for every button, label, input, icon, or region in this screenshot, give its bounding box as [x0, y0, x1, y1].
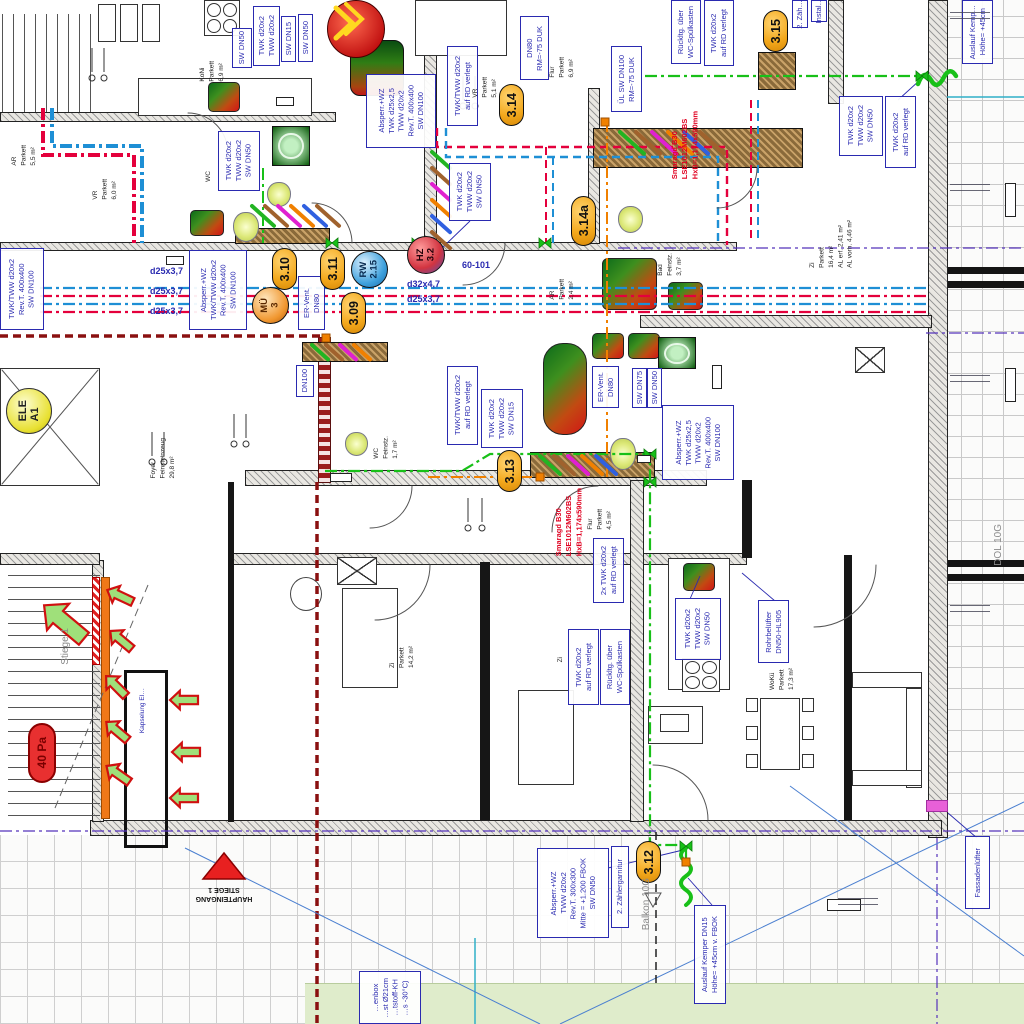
pipe-label-box: TWK d20x2TWW d20x2SW DN50	[449, 163, 491, 221]
label-line: Parkett	[398, 646, 407, 668]
micro-annotation	[950, 605, 990, 612]
label-line: 2. Zählergarnitur	[615, 859, 625, 914]
label-line: Absperr.+WZ	[674, 417, 684, 469]
label-line: A1	[29, 400, 41, 421]
pipe-label-box: Rückltg. überWC-Spülkasten	[671, 0, 701, 64]
room-label: VRParkett5,1 m²	[478, 70, 493, 104]
label-line: ER-Vent.	[302, 288, 312, 318]
riser-badge: MÜ3	[252, 287, 289, 324]
label-line: 3.2	[426, 248, 436, 261]
label-line: TWW d20x2	[497, 398, 507, 439]
dimension-text: d25x3,7	[407, 294, 440, 304]
label-line: auf RD verlegt	[463, 375, 473, 435]
room-label: ZiParkett16,4 m²AL erf. 2,41 m²AL vorh. …	[810, 213, 854, 275]
pipe-label-box: TWK d20x2auf RD verlegt	[704, 0, 734, 66]
label-line: Smaragd B30	[554, 488, 564, 556]
label-line: Rückltg. über	[676, 6, 686, 58]
labels-layer: SW DN50TWK d20x2TWW d20x2SW DN15SW DN50T…	[0, 0, 1024, 1024]
label-line: …st Ø21cm	[380, 978, 390, 1018]
label-line: TWK/TWW d20x2	[453, 56, 463, 116]
entrance-label: HAUPTEINGANGSTIEGE 1	[190, 882, 258, 902]
label-line: AL erf. 2,41 m²	[837, 220, 846, 268]
label-line: …tstoff-KH	[390, 978, 400, 1018]
label-line: 5,5 m²	[29, 145, 38, 166]
label-line: SW DN50	[244, 140, 254, 181]
label-line: Absperr.+WZ	[377, 85, 387, 137]
smaragd-note: Smaragd B30LSE1012M602BSHxB=1,174x590mm	[667, 106, 703, 184]
pipe-label-box: 2. Zählergarnitur	[611, 846, 629, 928]
label-line: TWK d20x2	[846, 105, 856, 146]
label-line: Zi	[556, 657, 565, 662]
floorplan-drawing: SW DN50TWK d20x2TWW d20x2SW DN15SW DN50T…	[0, 0, 1024, 1024]
smaragd-note: Smaragd B30LSE1012M602BSHxB=1,174x590mm	[551, 486, 587, 558]
label-line: 3.11	[326, 257, 340, 281]
label-line: LSE1012M602BS	[564, 488, 574, 556]
label-line: TWK/TWW d20x2	[7, 259, 17, 319]
label-line: SW DN15	[507, 398, 517, 439]
pipe-label-box: TWK d20x2TWW d20x2	[253, 6, 280, 66]
label-line: TWK d20x2	[574, 643, 584, 691]
small-note-box	[712, 365, 722, 389]
label-line: LSE1012M602BS	[680, 111, 690, 179]
label-line: WC	[372, 436, 381, 459]
label-line: 3	[271, 298, 281, 313]
facade-tag	[1005, 183, 1016, 217]
label-line: 2,4 m²	[567, 279, 576, 300]
small-note-box	[330, 473, 352, 482]
label-line: DN80	[525, 26, 535, 71]
shaft-badge: 3.15	[763, 10, 788, 52]
pipe-label-box: Absperr.+WZTWK d25x2,5TWW d20x2Rev.T. 40…	[366, 74, 436, 148]
label-line: HAUPTEINGANG	[190, 893, 258, 902]
label-line: Kapselung EI…	[139, 688, 146, 733]
label-line: TWW d20x2	[234, 140, 244, 181]
label-line: TWW d20x2	[396, 85, 406, 137]
micro-annotation	[950, 184, 990, 191]
label-line: Feinstz.	[381, 436, 390, 459]
pipe-label-box: DN80RM=-75 DUK	[520, 16, 549, 80]
label-line: AL vorh. 4,46 m²	[846, 220, 855, 268]
label-line: WC	[204, 171, 213, 182]
pipe-label-box: 2x TWK d20x2auf RD verlegt	[593, 538, 624, 603]
shaft-badge: 3.09	[341, 292, 366, 334]
label-line: SW DN100	[713, 417, 723, 469]
label-line: Flur	[586, 509, 595, 530]
micro-annotation	[950, 12, 990, 19]
room-label: FlurParkett4,5 m²	[593, 503, 608, 535]
label-line: 2. Zäh…	[795, 0, 805, 28]
label-line: Smaragd B30	[670, 111, 680, 179]
label-line: Rev.T. 400x400	[17, 259, 27, 319]
pipe-label-box: Absperr.+WZTWK/TWW d20x2Rev.T. 400x400SW…	[189, 250, 247, 330]
label-line: Rohrbelüfter	[764, 610, 774, 654]
label-line: DN50-HL905	[774, 610, 784, 654]
label-line: TWK d20x2	[683, 608, 693, 649]
label-line: SW DN50	[703, 608, 713, 649]
room-label: ZiParkett14,2 m²	[394, 638, 411, 676]
stair-label: Stiege 1	[60, 628, 71, 674]
pipe-label-box: Auslauf Kemper DN15Höhe= +45cm v. FBOK	[694, 905, 726, 1004]
label-line: Flur	[548, 57, 557, 78]
label-line: TWK d20x2	[891, 108, 901, 156]
label-line: TWK d20x2	[257, 15, 267, 56]
small-note-box	[637, 455, 651, 463]
room-label: FlurParkett6,9 m²	[554, 48, 571, 86]
micro-annotation	[838, 898, 878, 905]
label-line: TWK/TWW d20x2	[208, 260, 218, 320]
pipe-label-box: SW DN75	[632, 368, 647, 408]
room-label: VRParkett6,0 m²	[96, 170, 114, 208]
label-line: Rev.T. 400x400	[218, 260, 228, 320]
encapsulation-note: Kapselung EI…	[139, 688, 149, 750]
label-line: SW DN50	[650, 371, 660, 404]
label-line: TWW d20x2	[856, 105, 866, 146]
label-line: 3.10	[278, 257, 292, 281]
label-line: Rev.T. 300x300	[568, 858, 578, 928]
label-line: Feinstz.	[666, 253, 675, 276]
label-line: 2x TWK d20x2	[599, 546, 609, 595]
label-line: Rev.T. 400x400	[406, 85, 416, 137]
label-line: TWW d20x2	[558, 858, 568, 928]
dimension-text: 60-101	[462, 260, 490, 270]
label-line: auf RD verlegt	[719, 9, 729, 57]
room-label: BadFeinstz.3,7 m²	[662, 248, 679, 280]
pipe-label-box: ER-Vent.DN80	[592, 366, 619, 408]
label-line: Auslauf Kemper DN15	[700, 916, 710, 993]
shaft-badge: 3.11	[320, 248, 345, 290]
riser-badge: RW2.15	[351, 251, 388, 288]
dimension-text: d32x4,7	[407, 279, 440, 289]
label-line: 14,2 m²	[407, 646, 416, 668]
label-line: TWW d20x2	[465, 171, 475, 212]
label-line: TWK/TWW d20x2	[453, 375, 463, 435]
label-line: …enbox	[371, 978, 381, 1018]
label-line: 3.13	[503, 459, 517, 483]
pipe-label-box: TWK d20x2TWW d20x2SW DN50	[675, 598, 721, 660]
label-line: auf RD verlegt	[609, 546, 619, 595]
label-line: KoNi	[198, 61, 207, 82]
pipe-label-box: TWK d20x2TWW d20x2SW DN50	[839, 96, 883, 156]
pressure-badge: 40 Pa	[28, 723, 56, 783]
label-line: 3,7 m²	[675, 253, 684, 276]
micro-annotation	[950, 375, 990, 382]
label-line: ÜL SW DN100	[617, 55, 627, 104]
label-line: 3.09	[347, 301, 361, 325]
label-line: TWK d25x2,5	[683, 417, 693, 469]
label-line: Feinsteinzeug	[158, 438, 167, 478]
pipe-label-box: Absperr.+WZTWW d20x2Rev.T. 300x300Mitte …	[537, 848, 609, 938]
pipe-label-box: ÜL SW DN100RM=-75 DUK	[611, 46, 642, 112]
label-line: TWK d20x2	[487, 398, 497, 439]
room-label: FoyerFeinsteinzeug29,8 m²	[153, 436, 173, 480]
label-line: ELE	[17, 400, 29, 421]
label-line: Parkett	[19, 145, 28, 166]
label-line: TWK d20x2	[455, 171, 465, 212]
label-line: Rückltg. über	[605, 641, 615, 693]
label-line: TWK d20x2	[224, 140, 234, 181]
label-line: SW DN50	[588, 858, 598, 928]
label-line: AR	[10, 145, 19, 166]
label-line: Zi	[388, 646, 397, 668]
label-line: VR	[471, 77, 480, 98]
label-line: Parkett	[558, 57, 567, 78]
label-line: SW DN50	[475, 171, 485, 212]
dimension-text: d25x3,7	[150, 306, 183, 316]
label-line: 3.15	[769, 19, 783, 43]
label-line: WC-Spülkasten	[615, 641, 625, 693]
shaft-badge: 3.10	[272, 248, 297, 290]
label-line: DN80	[312, 288, 322, 318]
label-line: SW DN75	[635, 371, 645, 404]
label-line: SW DN15	[284, 22, 294, 55]
label-line: SW DN50	[237, 31, 247, 64]
label-line: Foyer	[149, 438, 158, 478]
dimension-text: d25x3,7	[150, 286, 183, 296]
label-line: 29,8 m²	[168, 438, 177, 478]
label-line: HxB=1,174x590mm	[690, 111, 700, 179]
label-line: 4,5 m²	[605, 509, 614, 530]
label-line: Rev.T. 400x400	[703, 417, 713, 469]
label-line: Instal…	[814, 0, 824, 24]
label-line: TWW d20x2	[693, 417, 703, 469]
dimension-text: d25x3,7	[150, 266, 183, 276]
label-line: DN80	[606, 372, 616, 402]
label-line: Mitte = +1.200 FBOK	[578, 858, 588, 928]
room-label: WC	[204, 168, 214, 184]
label-line: SW DN50	[301, 21, 311, 54]
label-line: WoKü	[768, 668, 777, 690]
facade-note: DOL 10G	[993, 524, 1007, 570]
pipe-label-box: TWK d20x2auf RD verlegt	[568, 629, 599, 705]
label-line: 3.12	[642, 850, 656, 874]
pipe-label-box: SW DN15	[281, 16, 296, 62]
label-line: SW DN100	[228, 260, 238, 320]
label-line: TWK d25x2,5	[386, 85, 396, 137]
label-line: SW DN50	[866, 105, 876, 146]
shaft-badge: 3.14	[499, 84, 524, 126]
label-line: 2.15	[370, 260, 380, 279]
label-line: 6,9 m²	[217, 61, 226, 82]
pipe-label-box: SW DN50	[647, 368, 662, 408]
label-line: SW DN100	[416, 85, 426, 137]
shaft-badge: 3.14a	[571, 196, 596, 246]
electrical-shaft-badge: ELEA1	[6, 388, 52, 434]
label-line: RM=-75 DUK	[535, 26, 545, 71]
label-line: STIEGE 1	[190, 885, 258, 894]
pipe-label-box: SW DN50	[232, 28, 252, 68]
label-line: Parkett	[207, 61, 216, 82]
pipe-label-box: TWK d20x2auf RD verlegt	[885, 96, 916, 168]
room-label: Zi	[556, 653, 566, 667]
pipe-label-box: DN100	[296, 365, 314, 397]
label-line: Absperr.+WZ	[199, 260, 209, 320]
pipe-label-box: TWK/TWW d20x2Rev.T. 400x400SW DN100	[0, 248, 44, 330]
label-line: 6,9 m²	[567, 57, 576, 78]
label-line: DN100	[300, 369, 310, 392]
label-line: TWK d20x2	[709, 9, 719, 57]
label-line: SW DN100	[27, 259, 37, 319]
label-line: 3.14a	[577, 205, 591, 236]
label-line: 17,3 m²	[787, 668, 796, 690]
room-label: KoNiParkett6,9 m²	[203, 50, 221, 92]
label-line: auf RD verlegt	[584, 643, 594, 691]
label-line: 40 Pa	[35, 737, 49, 768]
label-line: Parkett	[100, 179, 109, 200]
pipe-label-box: TWK d20x2TWW d20x2SW DN50	[218, 131, 260, 191]
label-line: ER-Vent.	[596, 372, 606, 402]
room-label: WCFeinstz.1,7 m²	[374, 432, 398, 462]
pipe-label-box: …enbox…st Ø21cm…tstoff-KH…s -30°C)	[359, 971, 421, 1024]
pipe-label-box: RohrbelüfterDN50-HL905	[758, 600, 789, 663]
label-line: AR	[548, 279, 557, 300]
room-label: ARParkett2,4 m²	[555, 274, 570, 304]
label-line: Parkett	[481, 77, 490, 98]
small-note-box	[276, 97, 294, 106]
pipe-label-box: TWK/TWW d20x2auf RD verlegt	[447, 366, 478, 445]
room-label: ARParkett5,5 m²	[15, 136, 33, 174]
label-line: VR	[91, 179, 100, 200]
pipe-label-box: 2. Zäh…	[792, 0, 808, 28]
pipe-label-box: Rückltg. überWC-Spülkasten	[600, 629, 630, 705]
label-line: Parkett	[596, 509, 605, 530]
label-line: TWW d20x2	[693, 608, 703, 649]
label-line: 1,7 m²	[391, 436, 400, 459]
label-line: 3.14	[505, 93, 519, 117]
pipe-label-box: Fassadenlüfter	[965, 836, 990, 909]
label-line: auf RD verlegt	[901, 108, 911, 156]
pipe-label-box: Auslauf Kemp…Höhe= +45cm	[962, 0, 993, 64]
label-line: Absperr.+WZ	[549, 858, 559, 928]
pipe-label-box: SW DN50	[298, 14, 313, 62]
pipe-label-box: Absperr.+WZTWK d25x2,5TWW d20x2Rev.T. 40…	[662, 405, 734, 480]
shaft-badge: 3.13	[497, 450, 522, 492]
facade-tag	[1005, 368, 1016, 402]
label-line: Parkett	[558, 279, 567, 300]
room-label: WoKüParkett17,3 m²	[774, 663, 791, 695]
label-line: HxB=1,174x590mm	[574, 488, 584, 556]
label-line: Stiege 1	[60, 628, 71, 665]
label-line: Parkett	[778, 668, 787, 690]
shaft-badge: 3.12	[636, 841, 661, 883]
label-line: Balkon 10G	[641, 878, 652, 930]
riser-badge: HZ3.2	[407, 236, 445, 274]
label-line: …s -30°C)	[400, 978, 410, 1018]
label-line: HZ	[416, 248, 426, 261]
label-line: Fassadenlüfter	[973, 848, 983, 898]
balcony-label: Balkon 10G	[641, 878, 656, 940]
label-line: WC-Spülkasten	[686, 6, 696, 58]
label-line: Höhe= +45cm v. FBOK	[710, 916, 720, 993]
label-line: Bad	[656, 253, 665, 276]
small-note-box	[166, 256, 184, 265]
label-line: TWW d20x2	[267, 15, 277, 56]
pipe-label-box: Instal…	[811, 0, 827, 22]
label-line: RM=-75 DUK	[627, 55, 637, 104]
label-line: DOL 10G	[993, 524, 1004, 566]
pipe-label-box: TWK d20x2TWW d20x2SW DN15	[481, 389, 523, 448]
label-line: 6,0 m²	[110, 179, 119, 200]
